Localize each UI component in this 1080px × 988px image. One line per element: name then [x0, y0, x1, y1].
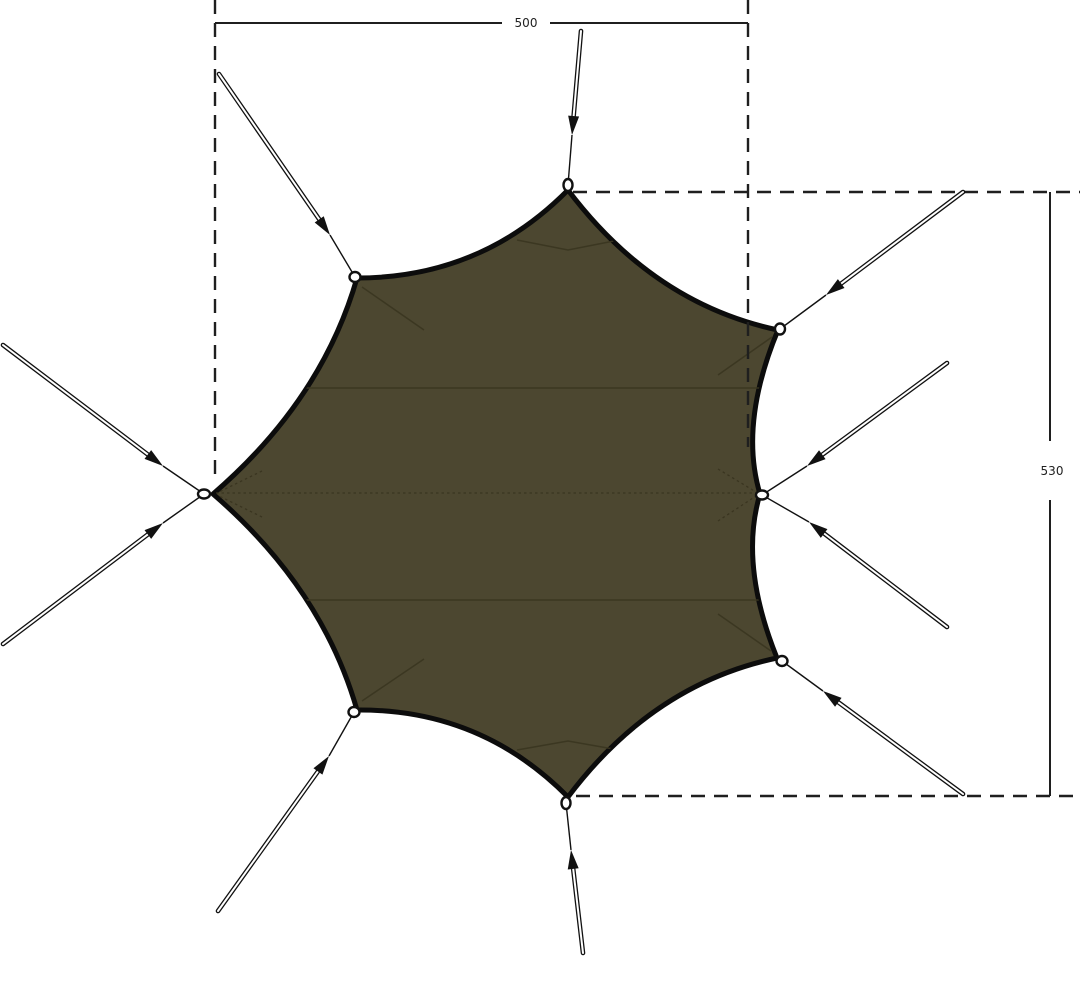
guy-line-tail: [782, 661, 823, 691]
arrowhead-icon: [568, 850, 579, 870]
tie-out-left: [198, 490, 210, 499]
guy-line-tail: [762, 466, 807, 495]
guy-line-lower-left: [218, 712, 354, 911]
guy-line-tail: [568, 135, 572, 185]
guy-line-left-lower: [3, 494, 204, 644]
guy-line-tail: [163, 494, 204, 523]
tarp-diagram-svg: 500530: [0, 0, 1080, 988]
guy-line-tail: [330, 235, 355, 277]
tarp-canopy: [213, 190, 778, 797]
guy-line-rope-core: [574, 31, 581, 116]
tie-out-lower-left: [349, 707, 360, 717]
tie-out-upper-right: [775, 324, 785, 335]
canopy-panel: [213, 190, 778, 797]
guy-line-rope-core: [573, 869, 583, 953]
tie-out-upper-left: [350, 272, 361, 282]
guy-line-rope-core: [822, 363, 947, 455]
arrowhead-icon: [568, 116, 579, 135]
tie-out-top: [564, 179, 573, 191]
guy-line-rope-core: [838, 702, 963, 794]
guy-line-upper-right: [780, 192, 963, 329]
guy-line-tail: [329, 712, 354, 756]
tie-out-right: [756, 491, 768, 500]
tie-out-lower-right: [777, 656, 788, 666]
guy-line-right-upper: [762, 363, 947, 495]
guy-line-right-lower: [762, 495, 947, 627]
guy-line-rope-core: [841, 192, 963, 284]
guy-line-left-upper: [3, 345, 204, 494]
guy-line-rope-core: [824, 534, 947, 627]
guy-line-tail: [780, 295, 826, 329]
guy-line-upper-left: [219, 74, 355, 277]
tie-out-bottom: [562, 797, 571, 809]
guy-line-rope-core: [218, 771, 318, 911]
guy-line-tail: [762, 495, 809, 522]
guy-line-tail: [163, 466, 204, 494]
guy-line-bottom: [566, 803, 583, 953]
guy-line-rope-core: [3, 534, 148, 644]
diagram-page: 500530: [0, 0, 1080, 988]
width-dimension-label: 500: [515, 16, 538, 30]
guy-line-rope-core: [3, 345, 148, 455]
guy-line-lower-right: [782, 661, 963, 794]
guy-line-top: [568, 31, 581, 185]
height-dimension-label: 530: [1041, 464, 1064, 478]
guy-line-rope-core: [219, 74, 319, 219]
